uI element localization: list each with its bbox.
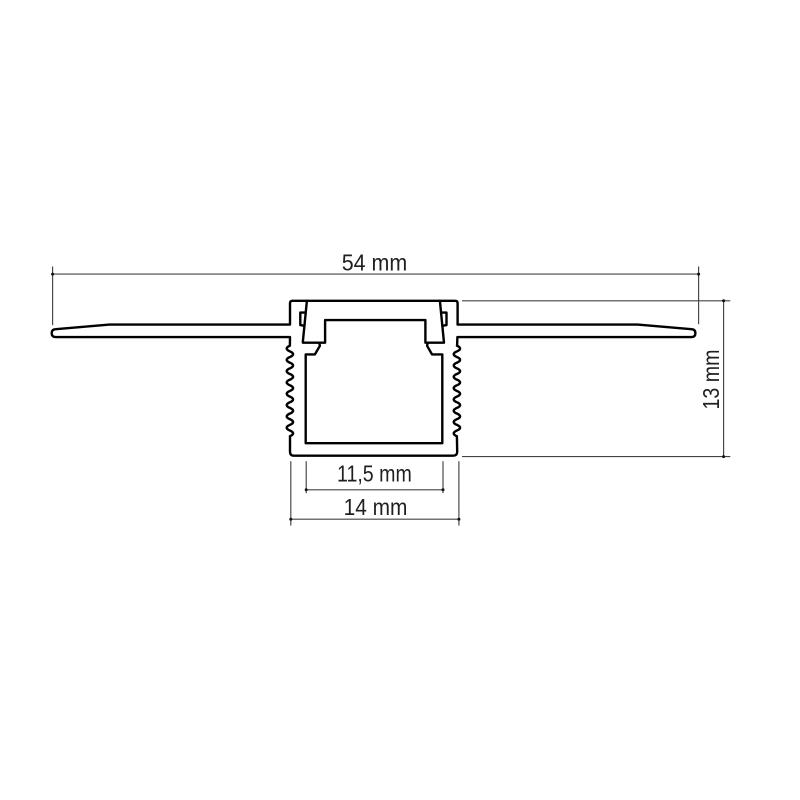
svg-text:14 mm: 14 mm bbox=[344, 494, 408, 520]
svg-text:54 mm: 54 mm bbox=[342, 250, 408, 276]
svg-text:13 mm: 13 mm bbox=[698, 350, 724, 410]
svg-text:11,5 mm: 11,5 mm bbox=[337, 461, 412, 487]
